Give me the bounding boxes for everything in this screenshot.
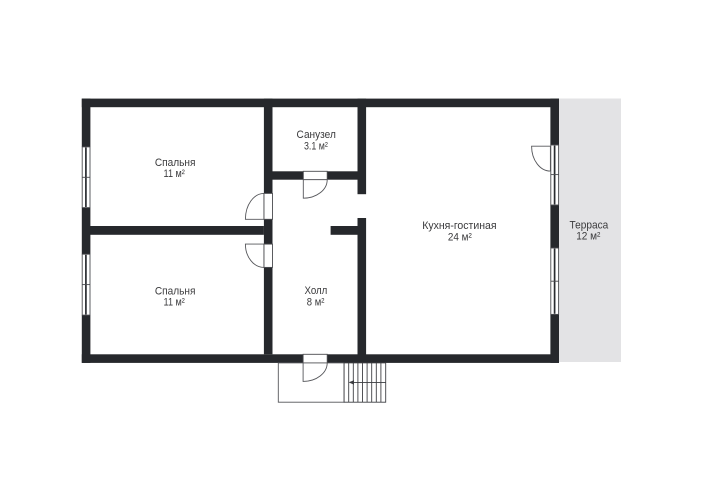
svg-text:24 м²: 24 м² <box>448 231 472 243</box>
svg-text:Спальня: Спальня <box>155 285 196 297</box>
svg-text:12 м²: 12 м² <box>576 231 601 243</box>
svg-text:Холл: Холл <box>305 285 328 297</box>
svg-text:Терраса: Терраса <box>570 219 609 231</box>
svg-text:11 м²: 11 м² <box>164 168 186 180</box>
svg-text:11 м²: 11 м² <box>164 297 186 309</box>
svg-text:8 м²: 8 м² <box>307 296 325 308</box>
svg-text:Санузел: Санузел <box>297 129 336 141</box>
svg-text:Спальня: Спальня <box>155 157 196 169</box>
svg-text:Кухня-гостиная: Кухня-гостиная <box>422 220 497 232</box>
svg-text:3.1 м²: 3.1 м² <box>304 140 328 152</box>
